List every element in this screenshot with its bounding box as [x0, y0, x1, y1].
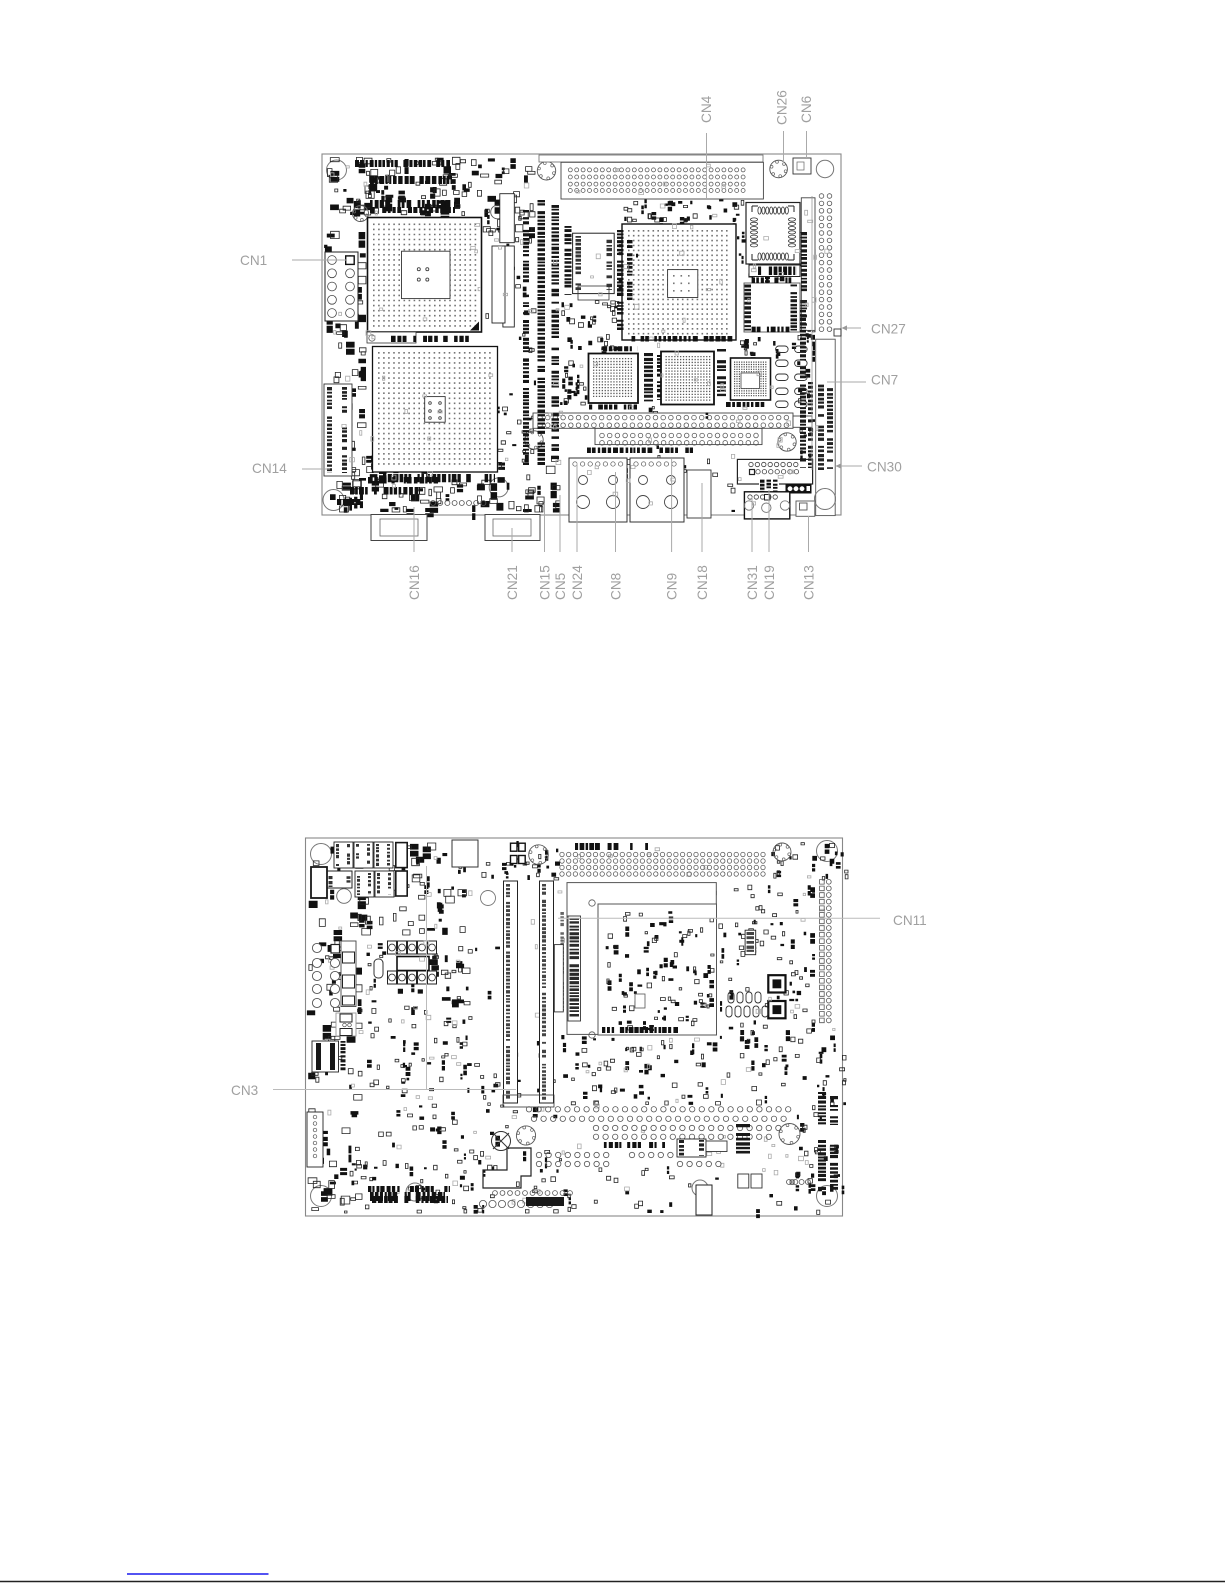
svg-text:CN31: CN31: [745, 565, 760, 600]
svg-text:CN5: CN5: [553, 573, 568, 600]
svg-text:CN27: CN27: [871, 322, 906, 337]
svg-text:CN16: CN16: [407, 565, 422, 600]
svg-text:CN30: CN30: [867, 460, 902, 475]
svg-text:CN14: CN14: [252, 461, 287, 476]
svg-text:CN21: CN21: [505, 565, 520, 600]
svg-text:CN1: CN1: [240, 253, 267, 268]
svg-text:CN19: CN19: [762, 565, 777, 600]
svg-text:CN8: CN8: [609, 573, 624, 600]
svg-text:CN15: CN15: [538, 565, 553, 600]
svg-text:CN11: CN11: [893, 913, 927, 928]
svg-text:CN24: CN24: [570, 565, 585, 600]
svg-text:CN9: CN9: [665, 573, 680, 600]
svg-text:CN13: CN13: [802, 565, 817, 600]
svg-text:CN6: CN6: [799, 96, 814, 123]
svg-text:CN18: CN18: [695, 565, 710, 600]
svg-text:CN26: CN26: [775, 90, 790, 125]
svg-text:CN7: CN7: [871, 373, 898, 388]
svg-text:CN4: CN4: [699, 95, 714, 123]
svg-text:CN3: CN3: [231, 1083, 258, 1098]
